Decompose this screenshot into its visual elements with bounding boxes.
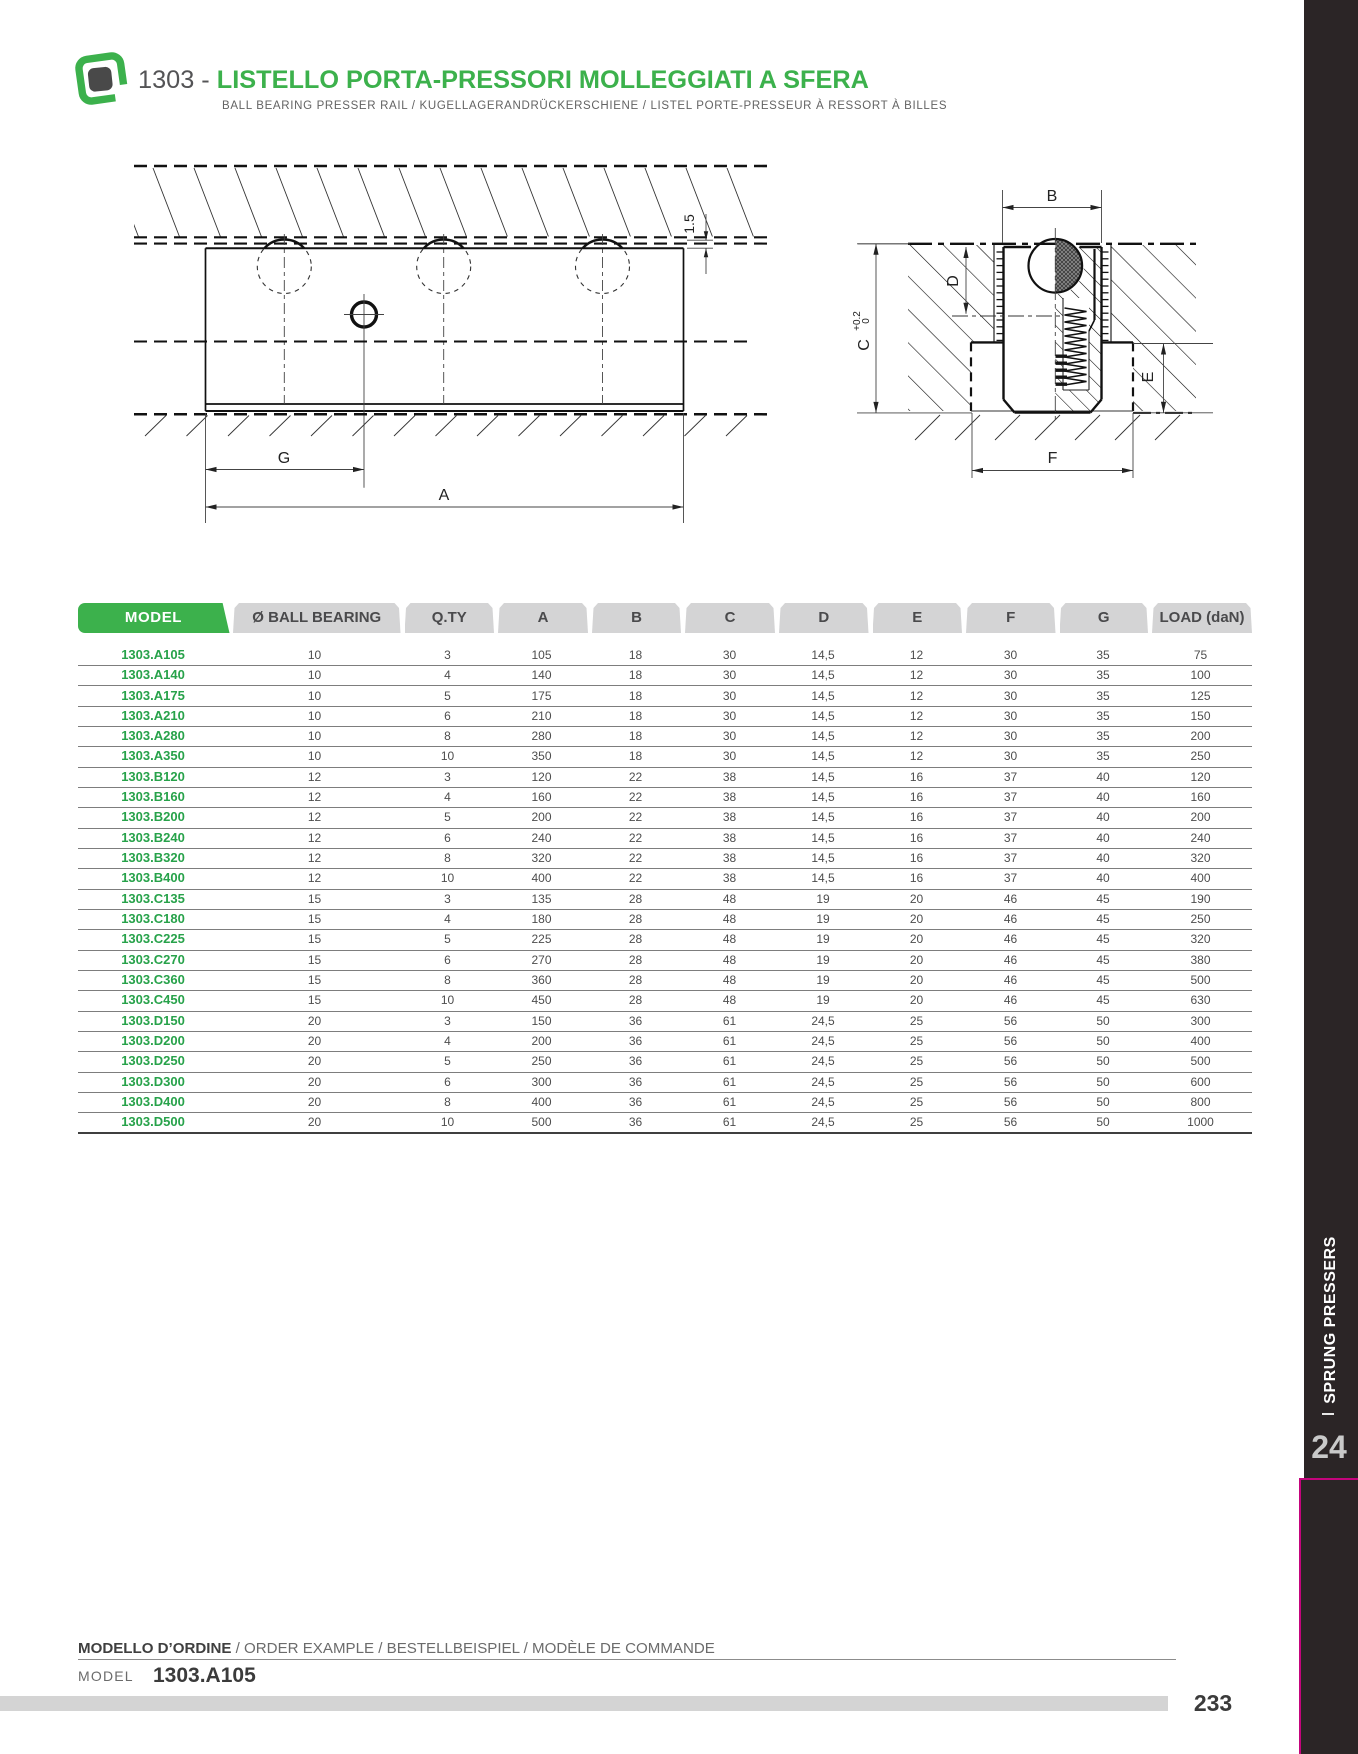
svg-text:G: G	[278, 450, 290, 467]
svg-text:1.5: 1.5	[681, 214, 697, 234]
svg-text:F: F	[1048, 450, 1058, 467]
svg-text:0: 0	[861, 318, 872, 324]
svg-text:E: E	[1140, 372, 1157, 383]
svg-text:A: A	[439, 487, 450, 504]
svg-text:D: D	[945, 275, 962, 287]
svg-text:B: B	[1047, 188, 1058, 205]
svg-text:C: C	[856, 339, 873, 351]
